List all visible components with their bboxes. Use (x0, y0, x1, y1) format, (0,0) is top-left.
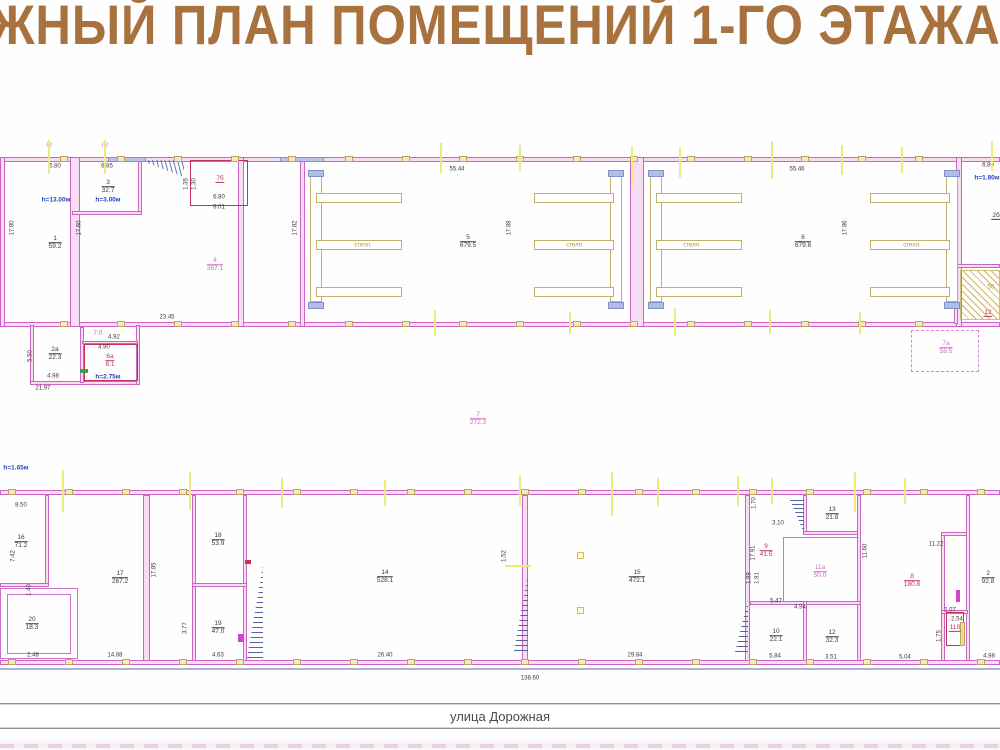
axis-tick (104, 140, 106, 174)
column-marker (288, 156, 296, 162)
dim-label: 1.91 (755, 572, 762, 584)
column-marker (806, 659, 814, 665)
dim-label: 5.50 (28, 350, 35, 362)
dim-label: 4.98 (47, 374, 59, 381)
dim-label: 5.84 (769, 654, 781, 661)
column-marker (521, 659, 529, 665)
dim-label: 1.30 (192, 178, 199, 190)
axis-tick (48, 140, 50, 174)
axis-tick (737, 476, 739, 506)
column-marker (231, 321, 239, 327)
axis-tick (569, 312, 571, 334)
dim-label: 11.60 (863, 544, 870, 559)
column-marker (464, 659, 472, 665)
dim-label: 2.54 (951, 617, 963, 624)
column-marker (521, 489, 529, 495)
dim-label: 21.97 (35, 386, 50, 393)
dim-label: 17.85 (152, 562, 159, 577)
dim-label: 17.80 (10, 220, 17, 235)
dim-label: 1.35 (184, 178, 191, 190)
column-marker (117, 321, 125, 327)
room-label: 1321.8 (826, 506, 839, 522)
axis-tick (904, 478, 906, 504)
dim-label: 3.10 (772, 521, 784, 528)
column-marker (749, 489, 757, 495)
room-label: 7а58.5 (940, 340, 953, 356)
tan-label: стелл. (903, 243, 921, 250)
dim-label: 1.70 (752, 497, 759, 509)
tan-label: стелл. (566, 243, 584, 250)
dim-label: 138.60 (521, 676, 539, 683)
room-label: 292.8 (982, 570, 995, 586)
column-marker (464, 489, 472, 495)
room-label: 8180.8 (904, 573, 920, 589)
room-label: 14528.1 (377, 569, 393, 585)
dim-label: 6.80 (49, 164, 61, 171)
column-marker (231, 156, 239, 162)
room-label: 941.5 (760, 543, 773, 559)
column-marker (60, 156, 68, 162)
dim-label: 6.80 (213, 195, 225, 202)
dim-label: 5.47 (770, 599, 782, 606)
column-marker (407, 489, 415, 495)
axis-tick (771, 478, 773, 504)
blue-label: h=3.00м (95, 196, 120, 203)
column-marker (806, 489, 814, 495)
column-marker (578, 659, 586, 665)
dim-label: 4.90 (98, 345, 110, 352)
room-label: 5679.5 (460, 234, 476, 250)
column-marker (863, 489, 871, 495)
column-marker (236, 659, 244, 665)
column-marker (174, 321, 182, 327)
axis-tick (769, 310, 771, 334)
dim-label: 17.82 (293, 220, 300, 235)
room-label: 11б (949, 624, 961, 632)
dim-label: 8.50 (15, 503, 27, 510)
dim-label: 5.04 (899, 655, 911, 662)
dim-label: 17.60 (77, 220, 84, 235)
axis-tick (62, 470, 64, 512)
axis-tick (841, 145, 843, 175)
column-marker (65, 489, 73, 495)
axis-tick (519, 476, 521, 506)
column-marker (65, 659, 73, 665)
column-marker (350, 659, 358, 665)
column-marker (687, 156, 695, 162)
column-marker (920, 489, 928, 495)
dim-label: 1.75 (937, 630, 944, 642)
dim-label: 55.44 (449, 167, 464, 174)
axis-tick (519, 145, 521, 171)
axis-tick (771, 141, 773, 179)
floor-plan-page: ЖНЫЙ ПЛАН ПОМЕЩЕНИЙ 1-ГО ЭТАЖА (0, 0, 1000, 750)
tan-label: стелл. (683, 243, 701, 250)
dim-label: 2.07 (944, 608, 956, 615)
blue-label: h=2.75м (95, 373, 120, 380)
column-marker (459, 321, 467, 327)
room-label: 12 (983, 309, 992, 317)
column-marker (573, 156, 581, 162)
column-marker (293, 659, 301, 665)
dim-label: 26.40 (377, 653, 392, 660)
column-marker (345, 321, 353, 327)
dim-label: 6.01 (213, 205, 225, 212)
room-label: 7272.3 (470, 411, 486, 427)
column-marker (687, 321, 695, 327)
column-marker (915, 321, 923, 327)
axis-tick (901, 147, 903, 173)
column-marker (350, 489, 358, 495)
room-label: 332.7 (102, 179, 115, 195)
column-marker (8, 659, 16, 665)
axis-tick (991, 141, 993, 171)
dim-label: 17.91 (751, 545, 758, 560)
dim-label: 55.46 (789, 167, 804, 174)
column-marker (749, 659, 757, 665)
column-marker (863, 659, 871, 665)
room-label: 17267.2 (112, 570, 128, 586)
column-marker (977, 489, 985, 495)
column-marker (744, 156, 752, 162)
room-label: 6679.8 (795, 234, 811, 250)
dim-label: 2.48 (27, 653, 39, 660)
axis-tick (611, 472, 613, 516)
room-label: 11а50.0 (814, 564, 827, 580)
tan-label: стелл. (354, 243, 372, 250)
column-marker (801, 321, 809, 327)
column-marker (977, 659, 985, 665)
axis-tick (657, 478, 659, 506)
pink-label: 7.б (93, 329, 102, 336)
room-label: 2а22.3 (49, 346, 62, 362)
room-label: 2б (991, 212, 1000, 220)
column-marker (915, 156, 923, 162)
room-label: 1671.2 (15, 534, 28, 550)
column-marker (117, 156, 125, 162)
column-marker (516, 321, 524, 327)
dim-label: 23.45 (159, 315, 174, 322)
column-marker (345, 156, 353, 162)
column-marker (402, 321, 410, 327)
dim-label: 11.22 (929, 542, 944, 549)
axis-tick (854, 472, 856, 512)
room-label: 15472.1 (629, 569, 645, 585)
column-marker (692, 489, 700, 495)
column-marker (801, 156, 809, 162)
dim-label: 3.77 (183, 622, 190, 634)
axis-tick (679, 148, 681, 178)
column-marker (60, 321, 68, 327)
room-label: 1853.9 (212, 532, 225, 548)
dim-label: 1.98 (747, 572, 754, 584)
room-label: 1947.0 (212, 620, 225, 636)
column-marker (174, 156, 182, 162)
axis-tick (859, 312, 861, 334)
column-marker (692, 659, 700, 665)
column-marker (122, 659, 130, 665)
column-marker (288, 321, 296, 327)
column-marker (236, 489, 244, 495)
column-marker (179, 489, 187, 495)
column-marker (459, 156, 467, 162)
axis-tick (674, 308, 676, 336)
tan-label: 50 (988, 285, 995, 292)
axis-tick (434, 310, 436, 336)
dim-label: 4.92 (108, 335, 120, 342)
room-label: 6а8.1 (105, 353, 114, 369)
dim-label: 3.51 (825, 655, 837, 662)
column-marker (8, 489, 16, 495)
dim-label: 6.85 (101, 164, 113, 171)
column-marker (635, 659, 643, 665)
axis-tick (440, 143, 442, 173)
dim-label: 7.42 (11, 550, 18, 562)
blue-label: h=1.65м (3, 464, 28, 471)
blue-label: h=13.00м (42, 196, 71, 203)
room-label: 7б (215, 175, 224, 183)
column-marker (858, 156, 866, 162)
axis-tick (281, 478, 283, 508)
room-label: 4387.1 (207, 257, 223, 273)
room-label: 1232.3 (826, 629, 839, 645)
dim-label: 4.94 (794, 605, 806, 612)
column-marker (407, 659, 415, 665)
column-marker (573, 321, 581, 327)
column-marker (635, 489, 643, 495)
column-marker (744, 321, 752, 327)
axis-tick (631, 146, 633, 186)
column-marker (293, 489, 301, 495)
column-marker (179, 659, 187, 665)
axis-tick (189, 472, 191, 510)
room-label: 1022.1 (770, 628, 783, 644)
column-marker (122, 489, 130, 495)
dim-label: 4.63 (212, 653, 224, 660)
labels-layer: 6.806.8517.8017.601.351.306.806.0155.441… (0, 0, 1000, 750)
room-label: 159.2 (49, 235, 62, 251)
dim-label: 1.40 (27, 584, 34, 596)
dim-label: 17.88 (507, 220, 514, 235)
column-marker (630, 321, 638, 327)
blue-label: h=1.80м (974, 174, 999, 181)
room-label: 2018.3 (26, 616, 39, 632)
dim-label: 1.52 (502, 550, 509, 562)
column-marker (402, 156, 410, 162)
axis-tick (384, 480, 386, 506)
dim-label: 14.88 (107, 653, 122, 660)
column-marker (578, 489, 586, 495)
column-marker (920, 659, 928, 665)
dim-label: 17.86 (843, 220, 850, 235)
